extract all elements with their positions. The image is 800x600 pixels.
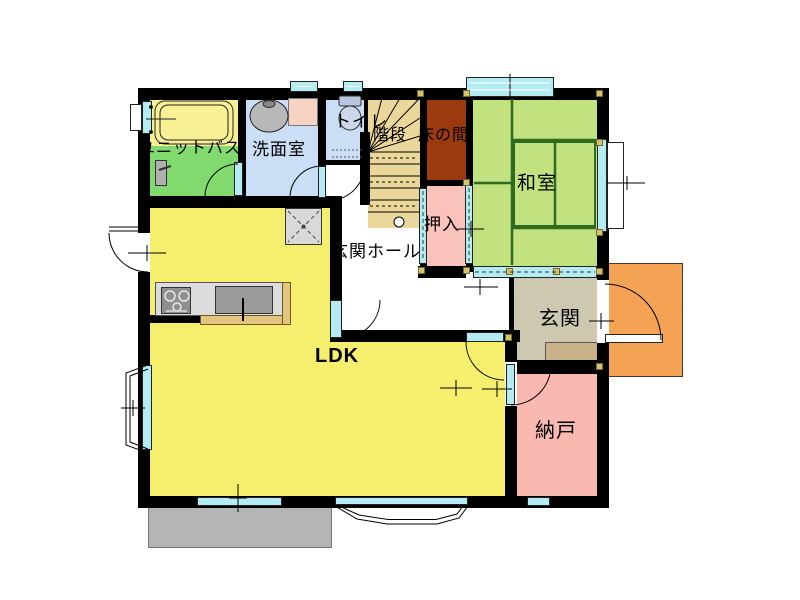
bay-window-ldk-left	[142, 365, 152, 450]
label-stairs: 階段	[373, 128, 407, 144]
pillar-marker	[596, 90, 603, 97]
label-tokonoma: 床の間	[418, 128, 469, 144]
window-toilet-top	[343, 81, 363, 92]
wall-counter-stub	[150, 315, 200, 323]
label-nando: 納戸	[535, 421, 577, 441]
pillar-marker	[418, 267, 425, 274]
wall-under-wet-rooms	[138, 196, 330, 208]
pillar-marker	[553, 268, 560, 275]
label-washitsu: 和室	[517, 174, 557, 193]
label-washroom: 洗面室	[252, 141, 306, 158]
pillar-marker	[596, 363, 603, 370]
window-nando-bottom	[527, 497, 550, 506]
sliding-door-washitsu-west	[465, 185, 473, 264]
window-ldk-bottom	[197, 497, 282, 506]
window-washitsu-right-frame	[607, 142, 624, 229]
arc-toilet-door	[330, 166, 364, 200]
window-unit-bath-left-frame	[130, 104, 142, 131]
label-unit-bath: ユニットバス	[139, 141, 241, 157]
label-genkan: 玄関	[539, 309, 581, 329]
pillar-marker	[463, 90, 470, 97]
pillar-marker	[506, 268, 513, 275]
pillar-marker	[463, 179, 470, 186]
pillar-marker	[463, 267, 470, 274]
bay-window-ldk-bottom	[335, 497, 468, 505]
floor-plan: ユニットバス 洗面室 トイレ 階段 床の間 和室 押入 玄関ホール 玄関 LDK…	[0, 0, 800, 600]
pillar-marker	[596, 139, 603, 146]
door-hall-ldk-west	[330, 300, 342, 338]
wall-genkan-left-line	[509, 278, 514, 340]
floor-hatch	[285, 208, 322, 245]
wall-ldk-right	[505, 336, 517, 496]
genkan-step	[545, 342, 597, 362]
label-ldk: LDK	[315, 346, 359, 366]
front-door-leaf	[605, 334, 663, 343]
entrance-porch	[605, 263, 683, 377]
window-unit-bath-left	[142, 101, 152, 134]
shower-unit	[155, 160, 167, 186]
wall-tokonoma-oshiire	[427, 180, 466, 186]
window-washroom-top	[290, 81, 318, 92]
pillar-marker	[505, 334, 512, 341]
kitchen-back-door-opening	[138, 233, 150, 272]
window-washitsu-top	[466, 77, 554, 97]
wood-deck	[148, 506, 332, 548]
wall-stairs-left	[360, 132, 370, 205]
washroom-counter	[288, 98, 318, 126]
kitchen-sink	[215, 286, 273, 314]
wall-genkan-nando	[517, 360, 597, 374]
door-hall-ldk-south	[466, 332, 504, 342]
door-washroom	[318, 166, 326, 198]
wall-oshiire-bottom	[418, 266, 466, 278]
label-oshiire: 押入	[424, 216, 460, 233]
door-nando	[506, 364, 515, 405]
kitchen-stove	[161, 287, 191, 314]
kitchen-counter-edge-bottom	[200, 315, 291, 325]
window-washitsu-right	[597, 139, 607, 232]
label-hall: 玄関ホール	[331, 243, 421, 260]
room-unit-bath-tub-area	[150, 98, 238, 146]
pillar-marker	[596, 268, 603, 275]
pillar-marker	[417, 90, 424, 97]
sliding-door-washitsu-south	[473, 266, 597, 278]
door-unit-bath	[234, 162, 243, 196]
pillar-marker	[596, 229, 603, 236]
kitchen-counter-edge-right	[282, 282, 291, 325]
